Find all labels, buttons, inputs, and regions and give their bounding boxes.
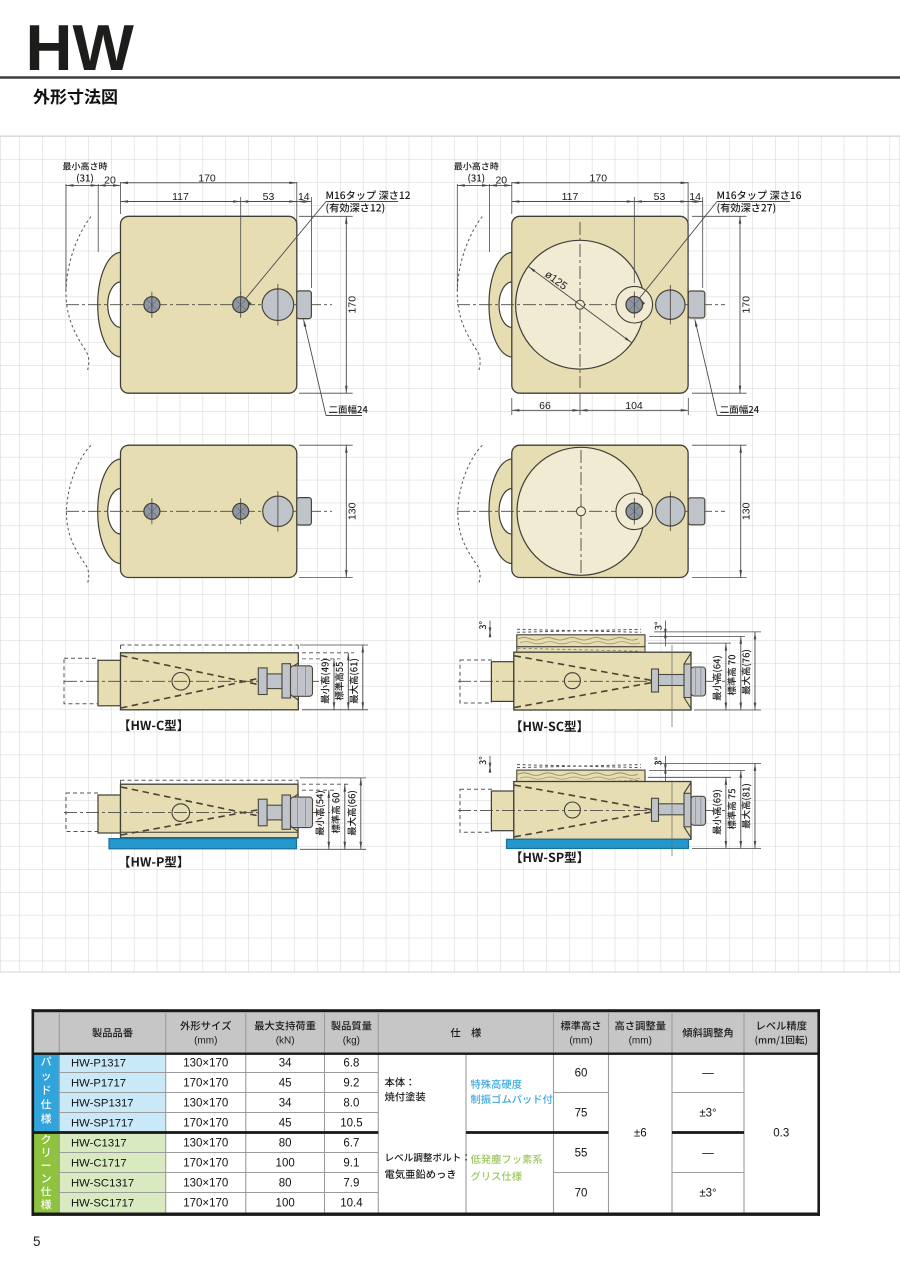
- svg-text:104: 104: [625, 400, 643, 412]
- svg-text:(mm): (mm): [629, 1036, 652, 1047]
- svg-text:100: 100: [276, 1158, 295, 1170]
- svg-text:130×170: 130×170: [183, 1058, 228, 1070]
- svg-text:(kN): (kN): [276, 1036, 295, 1047]
- svg-text:20: 20: [104, 175, 116, 187]
- svg-text:55: 55: [575, 1148, 588, 1160]
- svg-text:HW-SP1317: HW-SP1317: [71, 1098, 134, 1110]
- svg-text:HW-P1717: HW-P1717: [71, 1078, 126, 1090]
- svg-text:170×170: 170×170: [183, 1198, 228, 1210]
- svg-text:(mm): (mm): [569, 1036, 592, 1047]
- svg-text:117: 117: [172, 191, 189, 203]
- svg-text:75: 75: [575, 1108, 588, 1120]
- svg-text:5: 5: [33, 1234, 41, 1249]
- svg-text:80: 80: [279, 1138, 292, 1150]
- svg-text:170×170: 170×170: [183, 1118, 228, 1130]
- svg-text:53: 53: [654, 191, 666, 203]
- svg-text:7.9: 7.9: [343, 1178, 359, 1190]
- svg-text:14: 14: [689, 191, 701, 203]
- svg-text:117: 117: [562, 191, 579, 203]
- svg-text:53: 53: [263, 191, 275, 203]
- svg-text:130: 130: [347, 502, 359, 520]
- svg-text:±6: ±6: [634, 1128, 647, 1140]
- svg-text:45: 45: [279, 1118, 292, 1130]
- svg-text:HW-P1317: HW-P1317: [71, 1058, 126, 1070]
- svg-text:0.3: 0.3: [773, 1128, 789, 1140]
- svg-text:HW-C1717: HW-C1717: [71, 1158, 127, 1170]
- svg-text:HW-SC1317: HW-SC1317: [71, 1178, 134, 1190]
- svg-text:6.7: 6.7: [343, 1138, 359, 1150]
- svg-text:8.0: 8.0: [343, 1098, 359, 1110]
- svg-text:60: 60: [575, 1068, 588, 1080]
- svg-text:170: 170: [347, 296, 359, 314]
- svg-text:45: 45: [279, 1078, 292, 1090]
- svg-text:80: 80: [279, 1178, 292, 1190]
- svg-text:170×170: 170×170: [183, 1158, 228, 1170]
- svg-text:170: 170: [590, 172, 608, 184]
- svg-text:HW-C1317: HW-C1317: [71, 1138, 127, 1150]
- svg-text:—: —: [702, 1148, 714, 1160]
- svg-text:HW: HW: [26, 11, 135, 84]
- svg-text:130: 130: [741, 502, 753, 520]
- svg-text:9.1: 9.1: [343, 1158, 359, 1170]
- svg-text:130×170: 130×170: [183, 1138, 228, 1150]
- svg-text:6.8: 6.8: [343, 1058, 359, 1070]
- svg-text:34: 34: [279, 1058, 292, 1070]
- svg-text:70: 70: [575, 1188, 588, 1200]
- svg-text:66: 66: [539, 400, 551, 412]
- svg-text:100: 100: [276, 1198, 295, 1210]
- svg-text:—: —: [702, 1068, 714, 1080]
- svg-text:10.5: 10.5: [340, 1118, 362, 1130]
- svg-text:14: 14: [298, 191, 310, 203]
- svg-text:(kg): (kg): [343, 1036, 360, 1047]
- svg-text:130×170: 130×170: [183, 1178, 228, 1190]
- svg-text:±3°: ±3°: [699, 1188, 716, 1200]
- svg-text:130×170: 130×170: [183, 1098, 228, 1110]
- svg-text:170: 170: [198, 172, 216, 184]
- svg-text:±3°: ±3°: [699, 1108, 716, 1120]
- svg-text:170×170: 170×170: [183, 1078, 228, 1090]
- svg-text:34: 34: [279, 1098, 292, 1110]
- svg-text:20: 20: [495, 175, 507, 187]
- svg-text:HW-SP1717: HW-SP1717: [71, 1118, 134, 1130]
- svg-text:(mm): (mm): [194, 1036, 217, 1047]
- svg-text:9.2: 9.2: [343, 1078, 359, 1090]
- svg-text:170: 170: [741, 296, 753, 314]
- svg-text:HW-SC1717: HW-SC1717: [71, 1198, 134, 1210]
- svg-text:10.4: 10.4: [340, 1198, 363, 1210]
